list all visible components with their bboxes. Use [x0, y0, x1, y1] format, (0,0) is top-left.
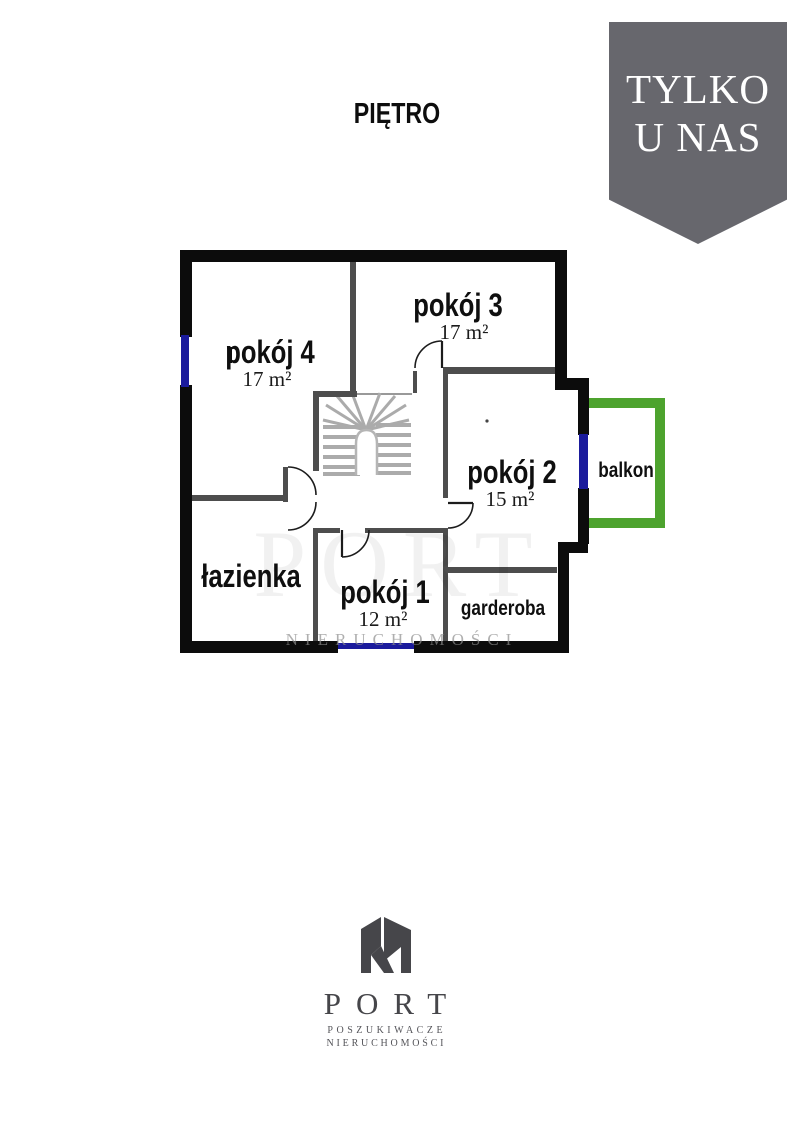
- port-logo-tagline1: POSZUKIWACZE: [235, 1025, 535, 1036]
- label-pokoj1: pokój 1: [340, 575, 430, 610]
- area-pokoj1: 12 m²: [359, 607, 408, 631]
- label-pokoj3: pokój 3: [413, 288, 503, 323]
- page: PIĘTRO TYLKO U NAS: [0, 0, 794, 1123]
- window-balcony-door: [579, 434, 588, 489]
- area-pokoj2: 15 m²: [486, 487, 535, 511]
- area-pokoj3: 17 m²: [440, 320, 489, 344]
- door-pokoj3: [415, 341, 442, 368]
- watermark-line: NIERUCHOMOŚCI: [286, 630, 519, 649]
- label-pokoj4: pokój 4: [225, 335, 315, 370]
- stair-newel-arch: [356, 430, 377, 475]
- label-balkon: balkon: [598, 460, 653, 483]
- port-logo-tagline2: NIERUCHOMOŚCI: [235, 1038, 535, 1049]
- area-pokoj4: 17 m²: [243, 367, 292, 391]
- label-lazienka: łazienka: [201, 559, 301, 594]
- staircase: [320, 393, 412, 475]
- window-left: [181, 335, 189, 387]
- port-logo-mark: [360, 915, 412, 977]
- label-garderoba: garderoba: [461, 598, 545, 621]
- port-logo-name: PORT: [235, 986, 535, 1022]
- label-pokoj2: pokój 2: [467, 455, 557, 490]
- plan-dot: [485, 419, 488, 422]
- door-pokoj4-hall: [288, 467, 316, 495]
